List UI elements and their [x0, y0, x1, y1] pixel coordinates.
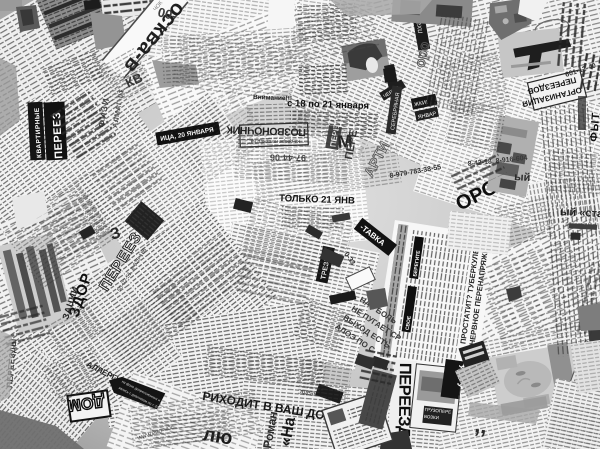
svg-text:ый: ый: [514, 171, 531, 184]
